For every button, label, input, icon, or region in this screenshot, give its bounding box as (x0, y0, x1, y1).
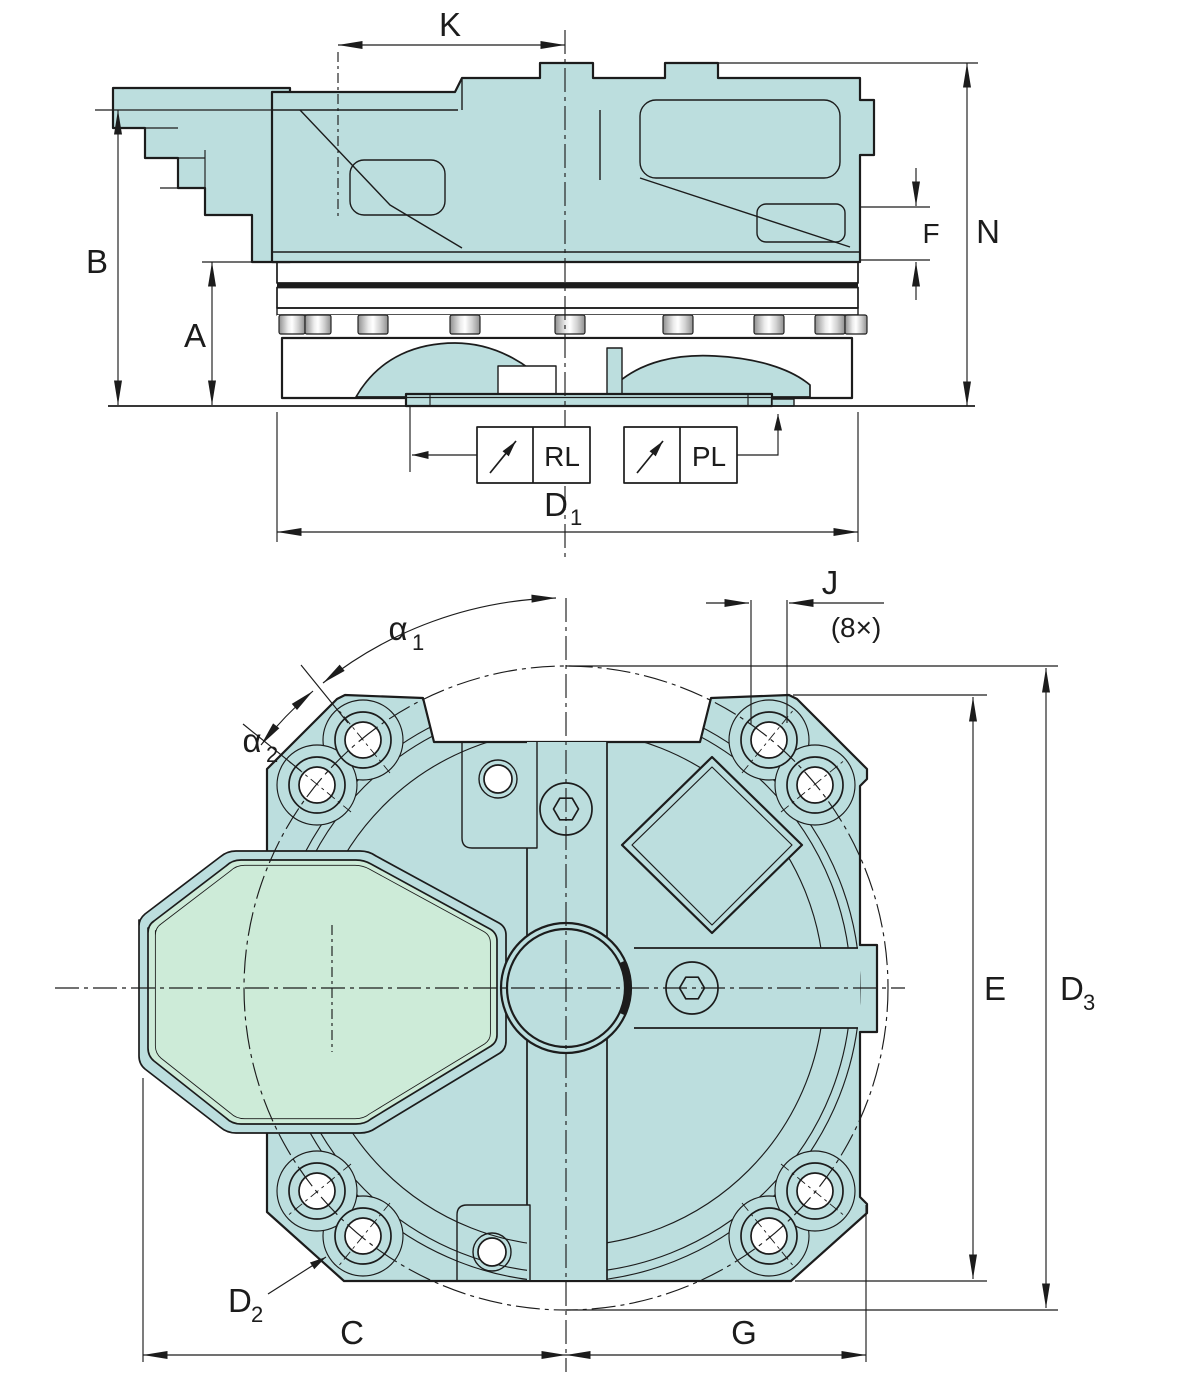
bolt (815, 315, 845, 334)
dim-alpha2-label: α (242, 722, 261, 759)
bolt-hole (299, 767, 335, 803)
dim-N-label: N (976, 213, 1000, 250)
dim-D2-sub: 2 (251, 1302, 263, 1327)
index-pin (607, 348, 622, 397)
dim-D3-label: D (1060, 970, 1084, 1007)
base-plate (406, 394, 772, 406)
base-step (772, 399, 794, 406)
bolt (663, 315, 693, 334)
dim-D1-sub: 1 (570, 505, 582, 530)
port-PL-label: PL (692, 441, 726, 472)
housing-upper (272, 63, 874, 262)
bolt (358, 315, 388, 334)
pin-hole-top (484, 765, 512, 793)
dim-A-label: A (184, 317, 206, 354)
dim-D3-sub: 3 (1083, 990, 1095, 1015)
bolt (279, 315, 305, 334)
dim-C-label: C (340, 1314, 364, 1351)
port-RL-label: RL (544, 441, 580, 472)
bolt (450, 315, 480, 334)
bolt (754, 315, 784, 334)
dim-F-label: F (922, 218, 939, 249)
dim-alpha2-sub: 2 (266, 742, 278, 767)
cam-follower-step (498, 366, 556, 397)
dim-K-label: K (439, 6, 461, 43)
pin-hole-bottom (478, 1238, 506, 1266)
dim-D1-label: D (544, 486, 568, 523)
dim-B-label: B (86, 243, 108, 280)
dim-alpha1-label: α (388, 610, 407, 647)
dim-D2-label: D (228, 1282, 252, 1319)
dim-G-label: G (731, 1314, 757, 1351)
dim-E-label: E (984, 970, 1006, 1007)
rotary-table-drawing: K B A N F (0, 0, 1200, 1380)
dim-alpha1-sub: 1 (412, 630, 424, 655)
bolt-hole (299, 1173, 335, 1209)
bolt (845, 315, 867, 334)
bolt-hole (797, 1173, 833, 1209)
bolt (555, 315, 585, 334)
bolt (305, 315, 331, 334)
dim-J-count: (8×) (831, 612, 882, 643)
technical-drawing-page: K B A N F (0, 0, 1200, 1380)
dim-J-label: J (822, 564, 839, 601)
bolt-row (279, 315, 867, 334)
bolt-hole (797, 767, 833, 803)
